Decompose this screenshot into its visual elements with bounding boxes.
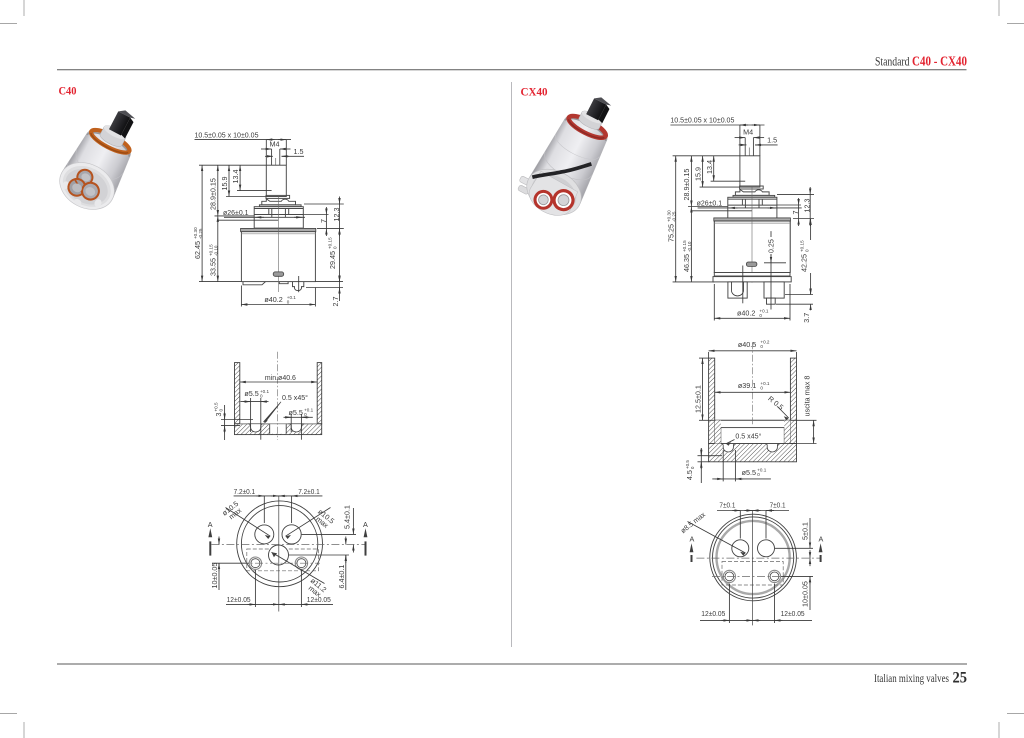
svg-text:0.5 x45°: 0.5 x45°: [735, 431, 761, 440]
svg-text:1.5: 1.5: [294, 147, 304, 156]
svg-text:42.25: 42.25: [800, 254, 809, 272]
svg-text:C40 - CX40: C40 - CX40: [912, 54, 967, 69]
svg-text:3: 3: [214, 413, 223, 417]
svg-text:33.55: 33.55: [209, 258, 218, 276]
svg-text:6.4±0.1: 6.4±0.1: [337, 565, 346, 589]
svg-text:28.9±0.15: 28.9±0.15: [209, 178, 218, 210]
svg-text:ø39.1: ø39.1: [738, 381, 756, 390]
svg-text:2.7: 2.7: [331, 297, 340, 307]
svg-text:12.3: 12.3: [332, 208, 341, 222]
svg-text:10.5±0.05 x 10±0.05: 10.5±0.05 x 10±0.05: [670, 115, 734, 124]
svg-text:ø40.5: ø40.5: [738, 340, 756, 349]
svg-text:13.4: 13.4: [231, 170, 240, 184]
svg-text:0: 0: [690, 466, 695, 469]
svg-text:0.5 x45°: 0.5 x45°: [282, 393, 308, 402]
svg-text:A: A: [819, 535, 824, 544]
svg-text:12.3: 12.3: [802, 199, 811, 213]
svg-text:7±0.1: 7±0.1: [770, 501, 786, 510]
svg-text:0.25: 0.25: [767, 239, 776, 253]
svg-text:ø40.2: ø40.2: [264, 295, 282, 304]
svg-text:12±0.05: 12±0.05: [701, 609, 725, 618]
svg-text:12±0.05: 12±0.05: [781, 609, 805, 618]
svg-text:3.7: 3.7: [802, 313, 811, 323]
svg-text:15.9: 15.9: [694, 167, 703, 181]
svg-text:0: 0: [304, 412, 307, 417]
svg-text:ø40.2: ø40.2: [737, 309, 755, 318]
svg-text:7.2±0.1: 7.2±0.1: [298, 487, 320, 496]
svg-text:12±0.05: 12±0.05: [307, 595, 331, 604]
svg-text:25: 25: [953, 670, 968, 687]
svg-text:0: 0: [757, 472, 760, 477]
svg-text:Italian mixing valves: Italian mixing valves: [874, 673, 949, 685]
svg-text:12±0.05: 12±0.05: [227, 595, 251, 604]
svg-text:5±0.1: 5±0.1: [801, 522, 810, 540]
svg-text:M4: M4: [270, 139, 280, 148]
svg-text:0: 0: [219, 409, 224, 412]
svg-text:-0.25: -0.25: [198, 228, 203, 239]
svg-text:0: 0: [287, 300, 290, 305]
svg-text:15.9: 15.9: [220, 177, 229, 191]
svg-text:7: 7: [791, 211, 800, 215]
svg-text:0: 0: [260, 393, 263, 398]
svg-text:min.ø40.6: min.ø40.6: [265, 373, 296, 382]
svg-text:10.5±0.05 x 10±0.05: 10.5±0.05 x 10±0.05: [195, 130, 259, 139]
svg-text:ø5.5: ø5.5: [742, 468, 756, 477]
svg-text:7.2±0.1: 7.2±0.1: [234, 487, 256, 496]
svg-text:0: 0: [804, 249, 809, 252]
svg-text:5.4±0.1: 5.4±0.1: [343, 505, 352, 529]
svg-text:10±0.05: 10±0.05: [210, 563, 219, 589]
svg-text:4.5: 4.5: [685, 470, 694, 480]
svg-text:75.25: 75.25: [667, 224, 676, 242]
svg-text:28.9±0.15: 28.9±0.15: [682, 169, 691, 201]
svg-text:M4: M4: [743, 128, 753, 137]
svg-text:Standard: Standard: [875, 55, 910, 69]
svg-text:13.4: 13.4: [705, 160, 714, 174]
svg-text:1.5: 1.5: [767, 135, 777, 144]
svg-text:CX40: CX40: [521, 87, 548, 99]
svg-text:A: A: [363, 520, 368, 529]
svg-text:ø26±0.1: ø26±0.1: [697, 199, 723, 208]
svg-text:10±0.05: 10±0.05: [801, 581, 810, 607]
svg-text:ø26±0.1: ø26±0.1: [223, 208, 249, 217]
svg-text:0: 0: [760, 344, 763, 349]
svg-text:46.35: 46.35: [682, 254, 691, 272]
svg-text:62.45: 62.45: [193, 241, 202, 259]
svg-text:A: A: [208, 520, 213, 529]
svg-text:ø5.5: ø5.5: [244, 389, 258, 398]
svg-text:C40: C40: [59, 86, 77, 98]
svg-text:R 0.5: R 0.5: [766, 394, 785, 412]
svg-text:0: 0: [760, 385, 763, 390]
svg-text:12.5±0.1: 12.5±0.1: [693, 385, 702, 413]
svg-text:ø8.5 max: ø8.5 max: [679, 510, 708, 535]
svg-text:-0.10: -0.10: [213, 245, 218, 256]
svg-text:7: 7: [319, 219, 328, 223]
svg-text:-0.25: -0.25: [671, 211, 676, 222]
svg-text:0: 0: [333, 246, 338, 249]
svg-text:ø5.5: ø5.5: [289, 408, 303, 417]
svg-text:A: A: [690, 535, 695, 544]
svg-text:-0.10: -0.10: [687, 241, 692, 252]
svg-text:0: 0: [759, 313, 762, 318]
svg-text:7±0.1: 7±0.1: [719, 501, 735, 510]
svg-text:29.45: 29.45: [328, 251, 337, 269]
svg-text:uscita max 8: uscita max 8: [803, 376, 812, 417]
